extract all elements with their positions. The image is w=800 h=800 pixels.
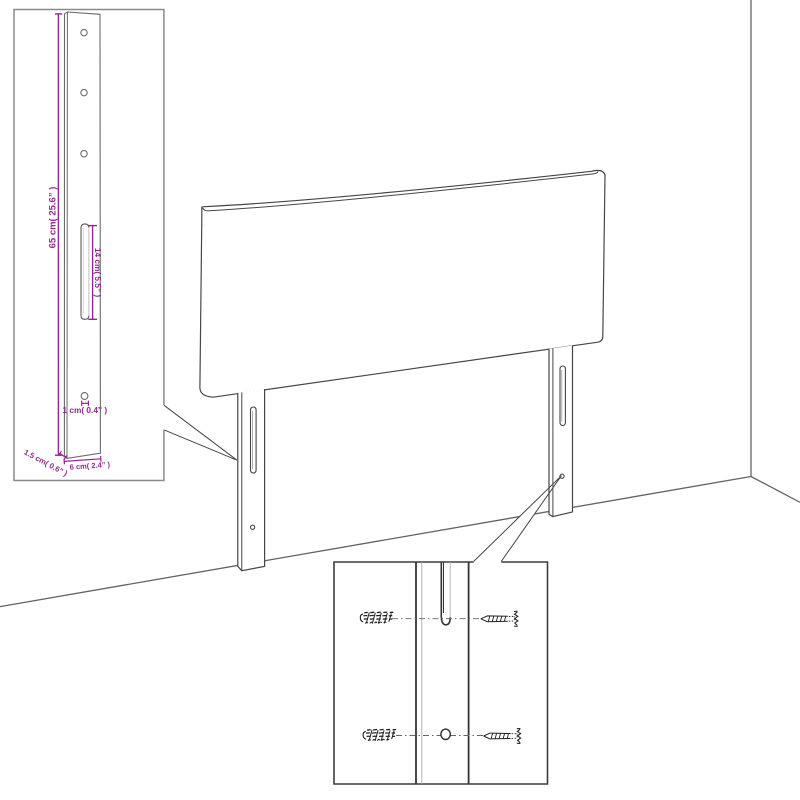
svg-text:14 cm( 5.5” ): 14 cm( 5.5” ): [93, 248, 103, 298]
svg-text:1 cm( 0.4” ): 1 cm( 0.4” ): [62, 405, 107, 415]
svg-text:65 cm( 25.6” ): 65 cm( 25.6” ): [48, 187, 59, 249]
